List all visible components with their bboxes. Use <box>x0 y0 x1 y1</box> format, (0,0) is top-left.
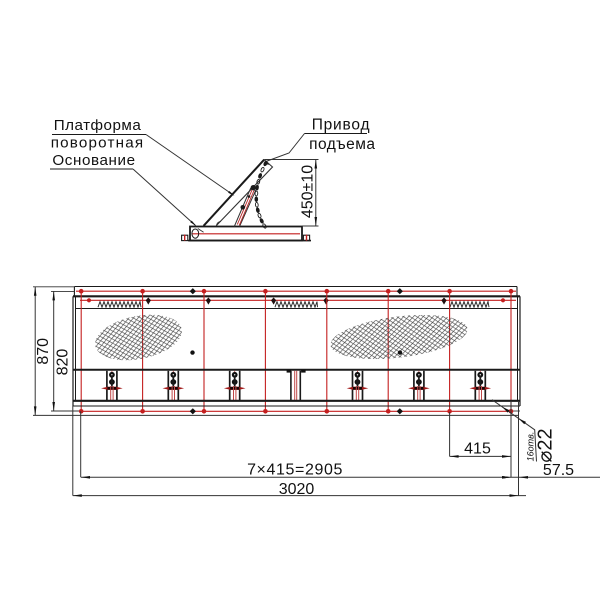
svg-text:16отв.: 16отв. <box>526 432 536 462</box>
svg-text:3020: 3020 <box>279 481 315 498</box>
svg-text:7×415=2905: 7×415=2905 <box>247 462 343 479</box>
svg-text:поворотная: поворотная <box>51 135 145 152</box>
svg-text:820: 820 <box>55 349 72 376</box>
svg-text:450±10: 450±10 <box>299 165 316 218</box>
svg-text:Основание: Основание <box>52 152 135 169</box>
svg-text:⌀22: ⌀22 <box>534 428 556 462</box>
svg-text:57.5: 57.5 <box>543 462 574 479</box>
svg-text:Платформа: Платформа <box>54 117 142 134</box>
svg-text:870: 870 <box>35 338 52 365</box>
svg-text:415: 415 <box>464 441 491 458</box>
svg-text:Привод: Привод <box>312 117 371 134</box>
svg-text:подъема: подъема <box>309 136 375 153</box>
